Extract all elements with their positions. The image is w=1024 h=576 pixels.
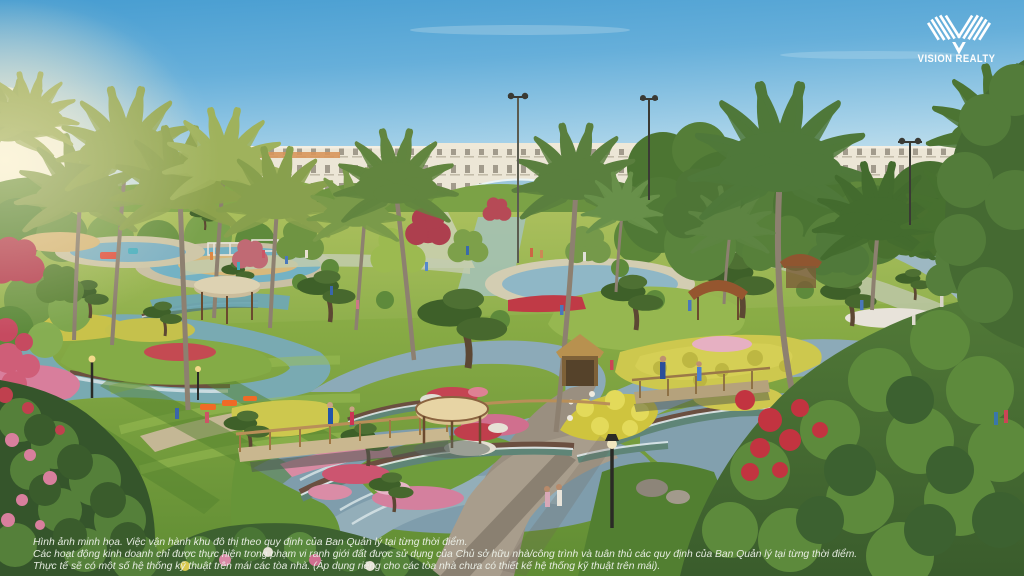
svg-text:VISION REALTY: VISION REALTY [918,54,996,66]
svg-text:Các hoạt động kinh doanh chỉ đ: Các hoạt động kinh doanh chỉ được thực h… [33,548,857,560]
svg-text:Hình ảnh minh họa. Việc vận hà: Hình ảnh minh họa. Việc vận hành khu đô … [33,536,467,548]
svg-text:Thực tế sẽ có một số hệ thống: Thực tế sẽ có một số hệ thống kỹ thuật t… [33,559,660,572]
